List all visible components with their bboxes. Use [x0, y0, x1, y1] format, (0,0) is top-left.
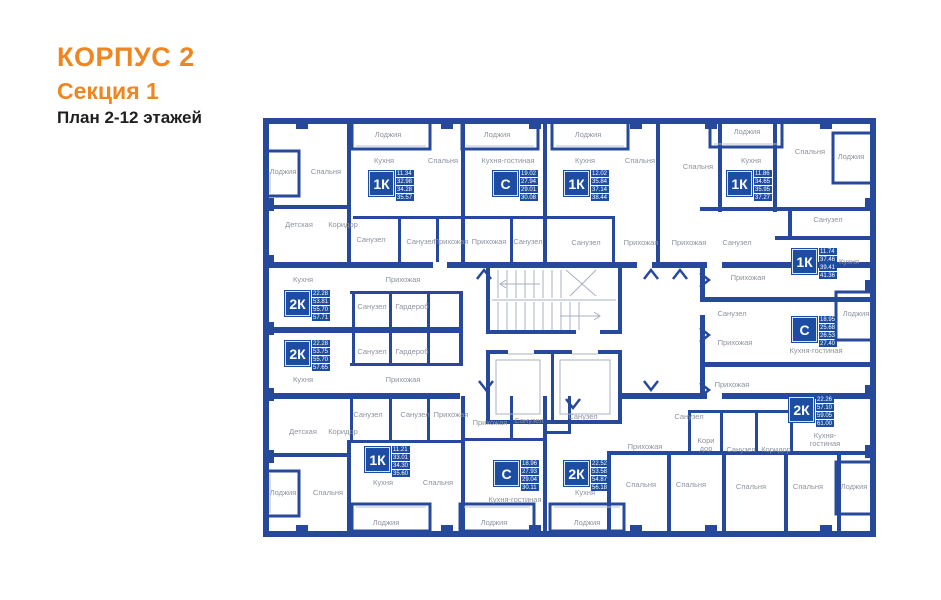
room-label: Кухня [741, 157, 761, 165]
apartment-areas: 11.3432.9834.2835.57 [396, 170, 414, 201]
room-label: Санузел [722, 239, 751, 247]
room-label: Кухня-гостиная [803, 432, 847, 448]
room-label: Прихожая [472, 238, 507, 246]
room-label: Прихожая [434, 411, 469, 419]
room-label: Коридор [328, 428, 358, 436]
apartment-badge[interactable]: 2К22.2853.8155.7057.71 [284, 290, 330, 321]
apartment-area-value: 26.53 [819, 332, 837, 339]
apartment-area-value: 34.28 [396, 186, 414, 193]
apartment-area-value: 12.02 [591, 170, 609, 177]
room-label: Лоджия [574, 519, 601, 527]
room-label: Кухня [839, 258, 859, 266]
apartment-badge[interactable]: 1К12.0235.8437.1438.44 [563, 170, 609, 201]
apartment-areas: 22.5253.5854.8756.18 [591, 460, 609, 491]
room-label: Прихожая [628, 443, 663, 451]
apartment-area-value: 38.44 [591, 194, 609, 201]
room-label: Лоджия [734, 128, 761, 136]
room-label: Коридор [761, 446, 791, 454]
apartment-area-value: 53.81 [312, 298, 330, 305]
apartment-areas: 18.9525.6826.5327.40 [819, 316, 837, 347]
room-label: Санузел [400, 411, 429, 419]
room-label: Кухня-гостиная [789, 347, 842, 355]
room-label: Спальня [683, 163, 713, 171]
room-label: Лоджия [375, 131, 402, 139]
apartment-areas: 22.2853.7555.7057.65 [312, 340, 330, 371]
room-label: Спальня [423, 479, 453, 487]
apartment-area-value: 11.21 [392, 446, 410, 453]
room-label: Спальня [736, 483, 766, 491]
apartment-areas: 11.8634.6535.9537.27 [754, 170, 772, 201]
apartment-type: 1К [364, 446, 391, 473]
apartment-area-value: 18.95 [819, 316, 837, 323]
room-label: Лоджия [843, 310, 870, 318]
apartment-areas: 18.9627.9329.0430.11 [521, 460, 539, 491]
apartment-area-value: 61.00 [816, 420, 834, 427]
apartment-type: 2К [284, 290, 311, 317]
apartment-area-value: 56.18 [591, 484, 609, 491]
room-label: Кухня [293, 376, 313, 384]
apartment-badge[interactable]: С18.9525.6826.5327.40 [791, 316, 837, 347]
apartment-type: С [791, 316, 818, 343]
room-label: Спальня [793, 483, 823, 491]
room-label: Спальня [428, 157, 458, 165]
apartment-badge[interactable]: 1К11.8634.6535.9537.27 [726, 170, 772, 201]
room-label: Лоджия [270, 168, 297, 176]
apartment-type: 1К [726, 170, 753, 197]
apartment-badge[interactable]: 2К22.2657.1059.0561.00 [788, 396, 834, 427]
apartment-area-value: 19.02 [520, 170, 538, 177]
room-label: Кухня-гостиная [481, 157, 534, 165]
apartment-area-value: 35.95 [754, 186, 772, 193]
apartment-area-value: 37.46 [819, 256, 837, 263]
apartment-area-value: 11.34 [396, 170, 414, 177]
apartment-areas: 22.2853.8155.7057.71 [312, 290, 330, 321]
room-label: Прихожая [718, 339, 753, 347]
apartment-area-value: 34.65 [754, 178, 772, 185]
apartment-type: 1К [368, 170, 395, 197]
room-label: Прихожая [386, 376, 421, 384]
apartment-area-value: 30.08 [520, 194, 538, 201]
room-label: Санузел [726, 446, 755, 454]
apartment-areas: 22.2657.1059.0561.00 [816, 396, 834, 427]
apartment-area-value: 37.27 [754, 194, 772, 201]
apartment-type: С [493, 460, 520, 487]
apartment-type: 2К [563, 460, 590, 487]
apartment-areas: 11.7437.4639.4141.36 [819, 248, 837, 279]
room-label: Лоджия [270, 489, 297, 497]
room-label: Кухня [575, 157, 595, 165]
apartment-type: 2К [788, 396, 815, 423]
apartment-type: С [492, 170, 519, 197]
room-label: Санузел [357, 348, 386, 356]
room-label: Кухня [373, 479, 393, 487]
room-label: Лоджия [841, 483, 868, 491]
room-label: Санузел [568, 413, 597, 421]
apartment-type: 1К [563, 170, 590, 197]
room-label: Кори дор [694, 437, 718, 453]
room-label: Прихожая [434, 238, 469, 246]
room-label: Санузел [514, 417, 543, 425]
apartment-area-value: 29.01 [520, 186, 538, 193]
apartment-area-value: 22.28 [312, 290, 330, 297]
apartment-area-value: 22.28 [312, 340, 330, 347]
room-label: Лоджия [575, 131, 602, 139]
room-label: Спальня [626, 481, 656, 489]
apartment-areas: 11.2133.0134.3035.60 [392, 446, 410, 477]
room-label: Спальня [676, 481, 706, 489]
apartment-area-value: 55.70 [312, 306, 330, 313]
apartment-area-value: 53.75 [312, 348, 330, 355]
apartment-area-value: 35.60 [392, 470, 410, 477]
room-label: Детская [289, 428, 317, 436]
room-label: Санузел [513, 238, 542, 246]
room-label: Санузел [717, 310, 746, 318]
apartment-area-value: 30.11 [521, 484, 539, 491]
room-label: Прихожая [473, 419, 508, 427]
apartment-area-value: 57.71 [312, 314, 330, 321]
room-label: Санузел [357, 303, 386, 311]
apartment-area-value: 22.52 [591, 460, 609, 467]
room-label: Санузел [674, 413, 703, 421]
room-label: Коридор [328, 221, 358, 229]
apartment-badge[interactable]: С18.9627.9329.0430.11 [493, 460, 539, 491]
apartment-area-value: 37.14 [591, 186, 609, 193]
apartment-area-value: 22.26 [816, 396, 834, 403]
room-label: Прихожая [715, 381, 750, 389]
apartment-area-value: 33.01 [392, 454, 410, 461]
room-label: Прихожая [731, 274, 766, 282]
apartment-area-value: 34.30 [392, 462, 410, 469]
apartment-area-value: 32.98 [396, 178, 414, 185]
room-label: Санузел [356, 236, 385, 244]
room-label: Кухня [293, 276, 313, 284]
apartment-badge[interactable]: 1К11.7437.4639.4141.36 [791, 248, 837, 279]
room-label: Прихожая [624, 239, 659, 247]
apartment-area-value: 41.36 [819, 272, 837, 279]
plan-annotations-layer: ЛоджияСпальняЛоджияКухняСпальняДетскаяКо… [0, 0, 941, 600]
apartment-area-value: 11.86 [754, 170, 772, 177]
room-label: Спальня [625, 157, 655, 165]
room-label: Спальня [311, 168, 341, 176]
apartment-area-value: 57.65 [312, 364, 330, 371]
apartment-badge[interactable]: 1К11.2133.0134.3035.60 [364, 446, 410, 477]
apartment-area-value: 11.74 [819, 248, 837, 255]
room-label: Гардероб [396, 348, 429, 356]
room-label: Гардероб [396, 303, 429, 311]
apartment-area-value: 35.57 [396, 194, 414, 201]
room-label: Лоджия [484, 131, 511, 139]
room-label: Санузел [571, 239, 600, 247]
room-label: Спальня [313, 489, 343, 497]
room-label: Санузел [353, 411, 382, 419]
apartment-badge[interactable]: С19.0227.9429.0130.08 [492, 170, 538, 201]
apartment-area-value: 27.94 [520, 178, 538, 185]
apartment-area-value: 53.58 [591, 468, 609, 475]
room-label: Санузел [406, 238, 435, 246]
room-label: Спальня [795, 148, 825, 156]
room-label: Лоджия [838, 153, 865, 161]
apartment-badge[interactable]: 1К11.3432.9834.2835.57 [368, 170, 414, 201]
apartment-area-value: 27.93 [521, 468, 539, 475]
apartment-type: 1К [791, 248, 818, 275]
apartment-area-value: 39.41 [819, 264, 837, 271]
apartment-area-value: 29.04 [521, 476, 539, 483]
room-label: Кухня-гостиная [488, 496, 541, 504]
apartment-area-value: 57.10 [816, 404, 834, 411]
room-label: Лоджия [481, 519, 508, 527]
apartment-type: 2К [284, 340, 311, 367]
apartment-area-value: 25.68 [819, 324, 837, 331]
room-label: Прихожая [386, 276, 421, 284]
apartment-area-value: 55.70 [312, 356, 330, 363]
room-label: Санузел [813, 216, 842, 224]
apartment-area-value: 18.96 [521, 460, 539, 467]
apartment-area-value: 54.87 [591, 476, 609, 483]
room-label: Кухня [374, 157, 394, 165]
apartment-area-value: 35.84 [591, 178, 609, 185]
room-label: Детская [285, 221, 313, 229]
apartment-area-value: 59.05 [816, 412, 834, 419]
floor-plan-page: КОРПУС 2 Секция 1 План 2-12 этажей [0, 0, 941, 600]
room-label: Прихожая [672, 239, 707, 247]
apartment-areas: 19.0227.9429.0130.08 [520, 170, 538, 201]
room-label: Лоджия [373, 519, 400, 527]
apartment-badge[interactable]: 2К22.2853.7555.7057.65 [284, 340, 330, 371]
apartment-badge[interactable]: 2К22.5253.5854.8756.18 [563, 460, 609, 491]
apartment-areas: 12.0235.8437.1438.44 [591, 170, 609, 201]
apartment-area-value: 27.40 [819, 340, 837, 347]
